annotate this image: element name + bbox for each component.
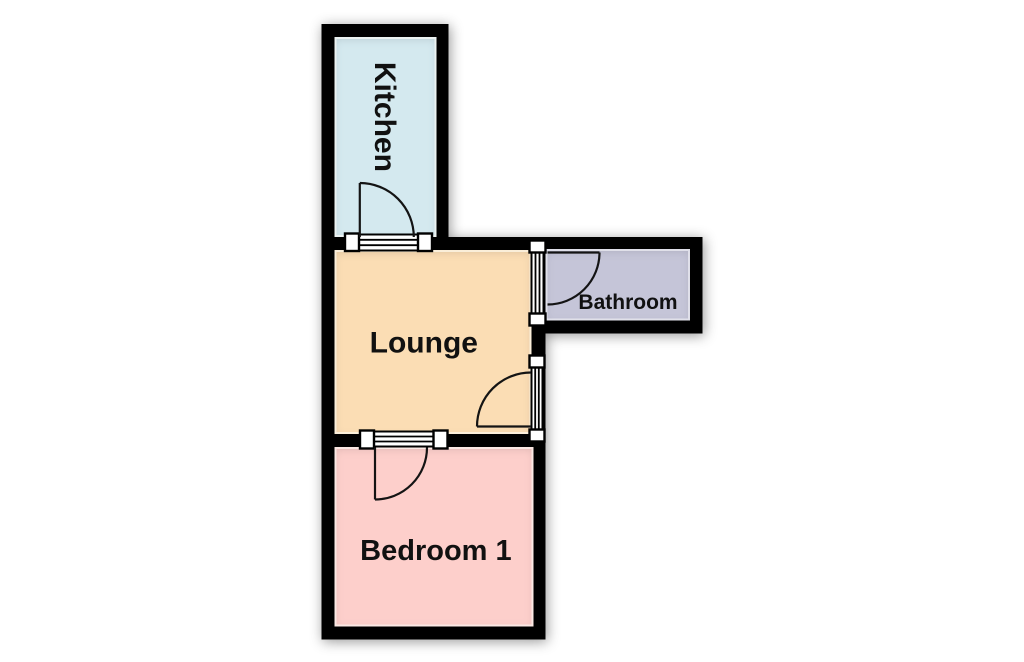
svg-text:Bedroom 1: Bedroom 1 bbox=[360, 535, 511, 567]
svg-text:Kitchen: Kitchen bbox=[368, 62, 401, 172]
svg-text:Bathroom: Bathroom bbox=[578, 291, 677, 314]
svg-text:Lounge: Lounge bbox=[370, 326, 478, 359]
